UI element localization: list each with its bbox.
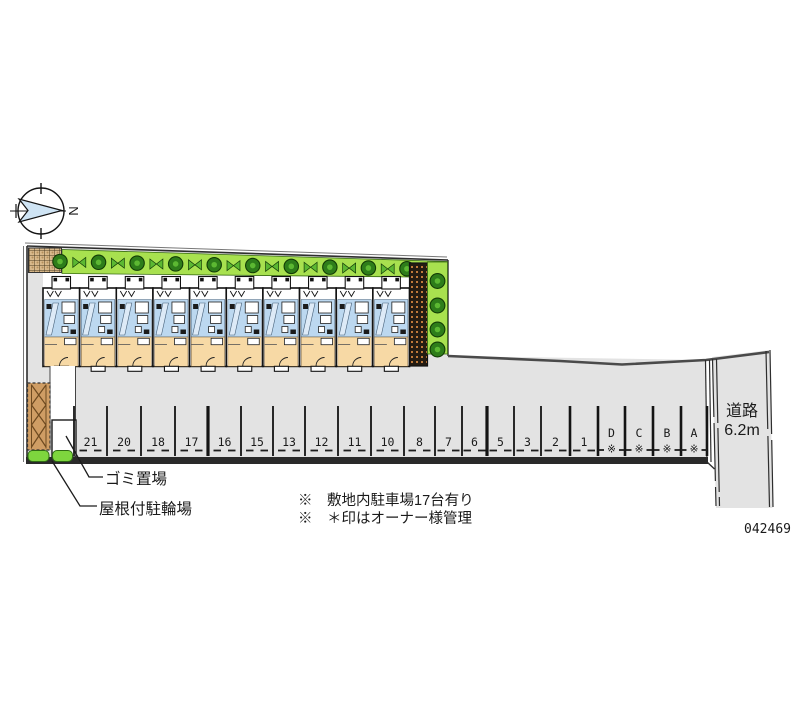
unit-closet [211, 338, 223, 344]
tree-crown-icon [327, 264, 333, 270]
unit-kitchen [247, 316, 258, 324]
hedge-blob-2 [53, 451, 73, 462]
bicycle-shed-roof [28, 383, 51, 450]
balcony-planter [383, 278, 387, 282]
unit-porch [128, 366, 142, 371]
parking-space-label: 17 [185, 435, 199, 449]
unit-kitchen [394, 316, 405, 324]
balcony-planter [102, 278, 106, 282]
parking-space-label: 16 [218, 435, 232, 449]
unit-fixture-dark [376, 304, 381, 309]
tree-crown-icon [134, 260, 140, 266]
unit-bath [245, 302, 258, 313]
parking-space-label: 5 [497, 435, 504, 449]
unit-fixture-dark [156, 304, 161, 309]
site-plan-drawing: N 2120181716151312111087653 [0, 0, 800, 727]
balcony-planter [395, 278, 399, 282]
hedge-blob-1 [28, 451, 49, 462]
unit-fixture-dark [83, 304, 88, 309]
unit-fixture-dark [254, 330, 260, 335]
parking-space-label: 8 [416, 435, 423, 449]
parking-space-label: 21 [84, 435, 98, 449]
unit-bath [392, 302, 405, 313]
balcony-planter [212, 278, 216, 282]
compass-north-label: N [66, 206, 81, 215]
unit-closet [284, 338, 296, 344]
balcony-planter [347, 278, 351, 282]
road-width-label: 6.2m [724, 422, 760, 439]
unit-bath [62, 302, 75, 313]
tree-crown-icon [250, 263, 256, 269]
unit-kitchen [64, 316, 75, 324]
parking-space-label: C [636, 426, 643, 440]
unit-fixture-dark [230, 304, 235, 309]
balcony-planter [90, 278, 94, 282]
unit-fixture [392, 327, 398, 333]
owner-managed-mark: ※ [607, 444, 616, 456]
balcony-planter [322, 278, 326, 282]
apartment-building [43, 277, 410, 372]
unit-closet [358, 338, 370, 344]
tree-crown-icon [173, 261, 179, 267]
parking-space-label: 7 [445, 435, 452, 449]
unit-closet [394, 338, 406, 344]
unit-closet [321, 338, 333, 344]
tree-crown-icon [289, 264, 295, 270]
balcony-planter [310, 278, 314, 282]
unit-fixture [62, 327, 68, 333]
unit-fixture-dark [340, 304, 345, 309]
boundary-east-2 [710, 360, 712, 462]
parking-space-label: A [691, 426, 698, 440]
unit-fixture-dark [120, 304, 125, 309]
tree-crown-icon [96, 260, 102, 266]
unit-closet [65, 338, 77, 344]
tree-crown-icon [435, 327, 441, 333]
owner-managed-mark: ※ [635, 444, 644, 456]
balcony-planter [273, 278, 277, 282]
boundary-south-thick [26, 457, 708, 464]
unit-closet [174, 338, 186, 344]
parking-space-label: 12 [315, 435, 329, 449]
balcony-planter [127, 278, 131, 282]
parking-space-label: B [664, 426, 671, 440]
parking-space-label: 18 [151, 435, 165, 449]
unit-bath [135, 302, 148, 313]
unit-bath [319, 302, 332, 313]
note-line-2: ※ ＊印はオーナー様管理 [298, 510, 472, 527]
unit-kitchen [357, 316, 368, 324]
parking-space-label: 13 [282, 435, 296, 449]
plan-id: 042469 [744, 522, 791, 537]
unit-kitchen [137, 316, 148, 324]
unit-bath [209, 302, 222, 313]
balcony-planter [237, 278, 241, 282]
unit-closet [248, 338, 260, 344]
unit-fixture-dark [327, 330, 333, 335]
owner-managed-mark: ※ [663, 444, 672, 456]
unit-fixture-dark [303, 304, 308, 309]
unit-fixture-dark [266, 304, 271, 309]
unit-porch [164, 366, 178, 371]
unit-fixture [282, 327, 288, 333]
unit-porch [311, 366, 325, 371]
unit-porch [91, 366, 105, 371]
parking-space-label: D [608, 426, 615, 440]
owner-managed-mark: ※ [690, 444, 699, 456]
parking-space-label: 1 [581, 435, 588, 449]
tree-crown-icon [435, 347, 441, 353]
unit-fixture-dark [144, 330, 150, 335]
unit-fixture [209, 327, 215, 333]
site-plan-page: N 2120181716151312111087653 [0, 0, 800, 727]
building-unit [373, 277, 410, 372]
unit-bath [172, 302, 185, 313]
unit-fixture [99, 327, 105, 333]
unit-fixture-dark [193, 304, 198, 309]
unit-bath [282, 302, 295, 313]
balcony-planter [359, 278, 363, 282]
unit-kitchen [174, 316, 185, 324]
parking-space-label: 2 [552, 435, 559, 449]
unit-kitchen [211, 316, 222, 324]
tree-crown-icon [435, 278, 441, 284]
road-name-label: 道路 [726, 402, 758, 420]
compass: N [10, 183, 81, 239]
unit-fixture-dark [180, 330, 186, 335]
balcony-planter [175, 278, 179, 282]
unit-closet [138, 338, 150, 344]
tree-crown-icon [211, 262, 217, 268]
building-unit [336, 277, 373, 372]
unit-fixture-dark [107, 330, 113, 335]
building-unit [116, 277, 153, 372]
parking-space-label: 10 [381, 435, 395, 449]
unit-porch [238, 366, 252, 371]
unit-fixture-dark [71, 330, 77, 335]
stairwell-strip [410, 263, 428, 366]
unit-fixture-dark [47, 304, 52, 309]
unit-kitchen [321, 316, 332, 324]
unit-fixture-dark [364, 330, 370, 335]
unit-porch [274, 366, 288, 371]
balcony-planter [200, 278, 204, 282]
parking-space-label: 15 [250, 435, 264, 449]
balcony-planter [54, 278, 58, 282]
unit-bath [355, 302, 368, 313]
building-unit [43, 277, 80, 372]
leader-bicycle [52, 461, 97, 506]
unit-porch [384, 366, 398, 371]
balcony-planter [163, 278, 167, 282]
unit-fixture [135, 327, 141, 333]
building-unit [80, 277, 117, 372]
building-unit [300, 277, 337, 372]
balcony-planter [285, 278, 289, 282]
building-unit [263, 277, 300, 372]
parking-space-label: 20 [117, 435, 131, 449]
unit-kitchen [284, 316, 295, 324]
bicycle-shed [28, 383, 51, 450]
unit-fixture [355, 327, 361, 333]
unit-fixture-dark [290, 330, 296, 335]
bicycle-label: 屋根付駐輪場 [99, 500, 192, 518]
walkway [50, 366, 76, 422]
garbage-label: ゴミ置場 [105, 469, 167, 488]
unit-fixture [245, 327, 251, 333]
unit-fixture-dark [217, 330, 223, 335]
balcony-planter [249, 278, 253, 282]
unit-porch [348, 366, 362, 371]
building-unit [226, 277, 263, 372]
tree-crown-icon [435, 303, 441, 309]
tree-crown-icon [57, 259, 63, 265]
building-unit [190, 277, 227, 372]
parking-space-label: 6 [471, 435, 478, 449]
unit-fixture-dark [400, 330, 406, 335]
unit-bath [99, 302, 112, 313]
unit-fixture [319, 327, 325, 333]
unit-fixture [172, 327, 178, 333]
balcony-planter [139, 278, 143, 282]
unit-closet [101, 338, 113, 344]
parking-space-label: 11 [348, 435, 362, 449]
building-unit [153, 277, 190, 372]
tree-crown-icon [366, 265, 372, 271]
parking-space-label: 3 [524, 435, 531, 449]
balcony-planter [66, 278, 70, 282]
unit-kitchen [101, 316, 112, 324]
note-line-1: ※ 敷地内駐車場17台有り [298, 492, 474, 509]
unit-porch [201, 366, 215, 371]
